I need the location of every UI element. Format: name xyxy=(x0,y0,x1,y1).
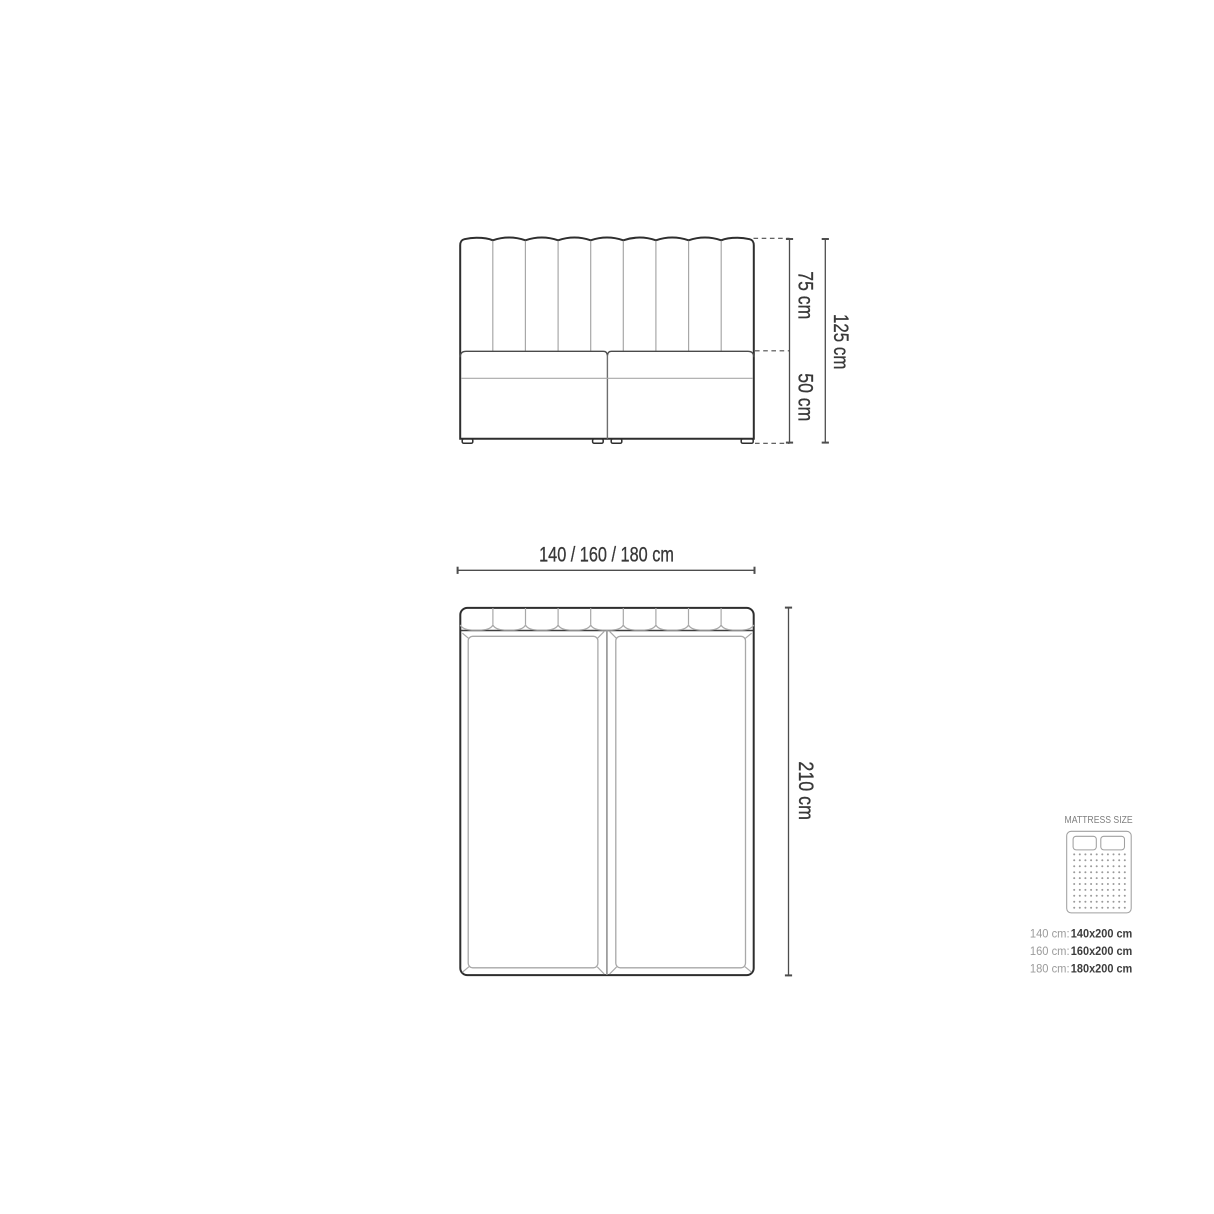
svg-text:180x200 cm: 180x200 cm xyxy=(1071,962,1133,975)
svg-text:210 cm: 210 cm xyxy=(794,761,818,820)
svg-text:MATTRESS SIZE: MATTRESS SIZE xyxy=(1065,815,1134,826)
svg-text:75 cm: 75 cm xyxy=(793,271,817,319)
svg-text:180 cm:: 180 cm: xyxy=(1030,962,1070,975)
svg-text:50 cm: 50 cm xyxy=(793,373,817,421)
svg-text:140 / 160 / 180 cm: 140 / 160 / 180 cm xyxy=(539,543,674,567)
svg-text:140x200 cm: 140x200 cm xyxy=(1071,927,1133,940)
svg-text:125 cm: 125 cm xyxy=(829,314,853,369)
svg-text:160x200 cm: 160x200 cm xyxy=(1071,945,1133,958)
svg-text:160 cm:: 160 cm: xyxy=(1030,945,1070,958)
svg-text:140 cm:: 140 cm: xyxy=(1030,927,1070,940)
